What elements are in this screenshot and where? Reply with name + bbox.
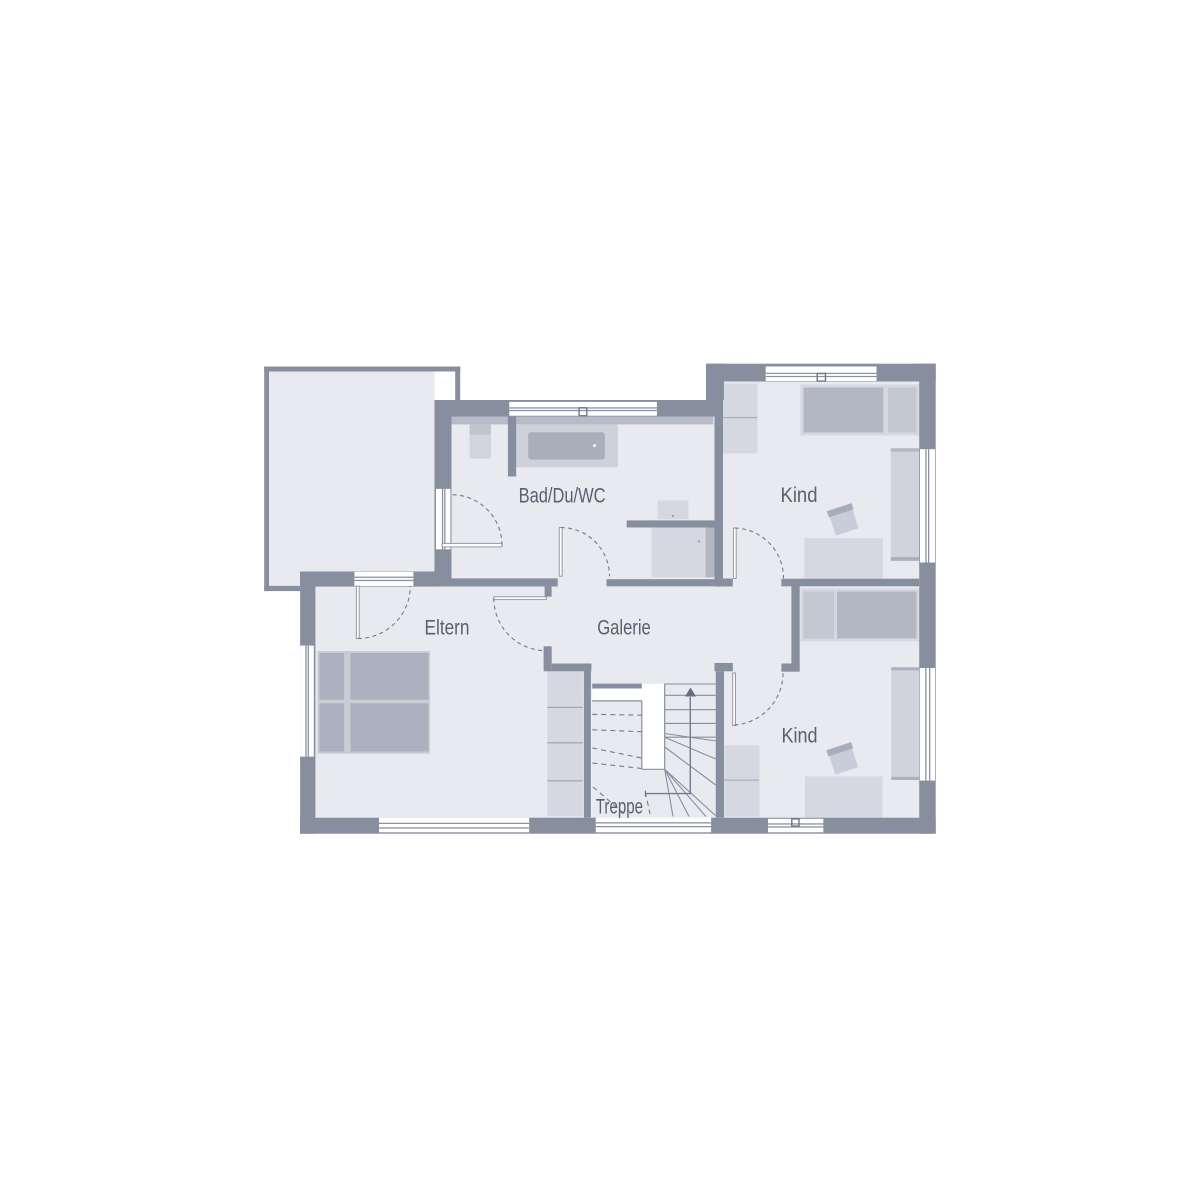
svg-text:Bad/Du/WC: Bad/Du/WC bbox=[519, 484, 606, 508]
svg-text:Kind: Kind bbox=[781, 483, 818, 507]
svg-text:Eltern: Eltern bbox=[425, 616, 470, 640]
svg-text:Kind: Kind bbox=[782, 724, 818, 748]
svg-text:Treppe: Treppe bbox=[596, 795, 643, 819]
svg-text:Galerie: Galerie bbox=[597, 616, 651, 640]
